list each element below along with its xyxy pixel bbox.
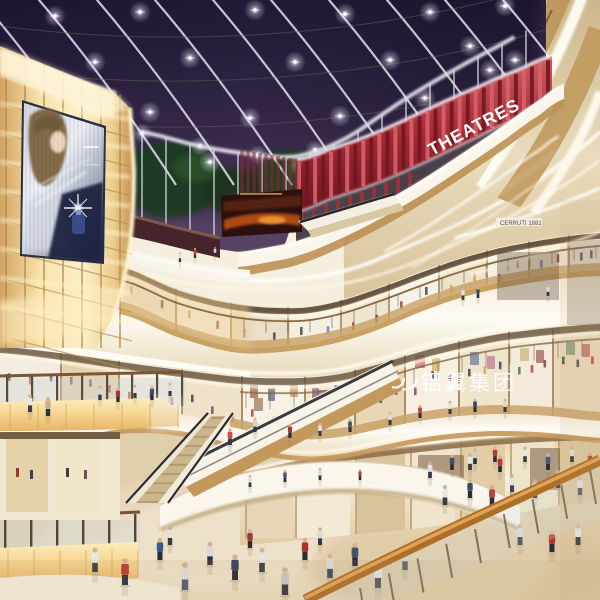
svg-text:CERRUTI 1881: CERRUTI 1881 xyxy=(500,221,542,227)
svg-text:铝翼集团: 铝翼集团 xyxy=(421,372,517,395)
